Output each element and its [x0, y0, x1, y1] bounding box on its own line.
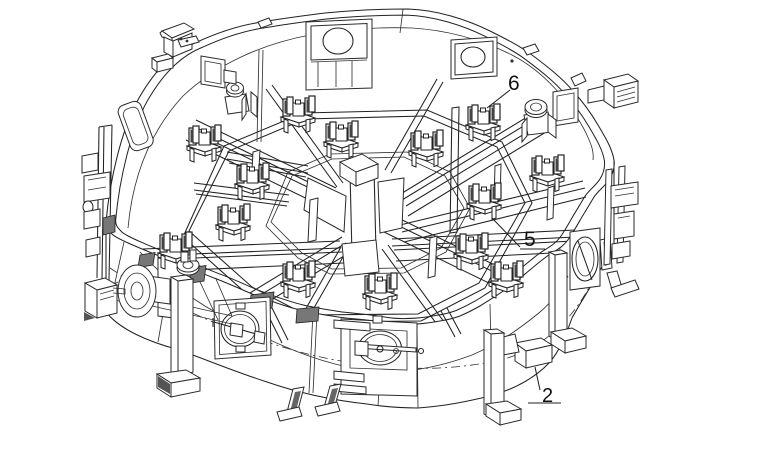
svg-text:2: 2: [542, 385, 553, 407]
svg-text:6: 6: [508, 72, 520, 95]
svg-text:5: 5: [524, 228, 536, 251]
